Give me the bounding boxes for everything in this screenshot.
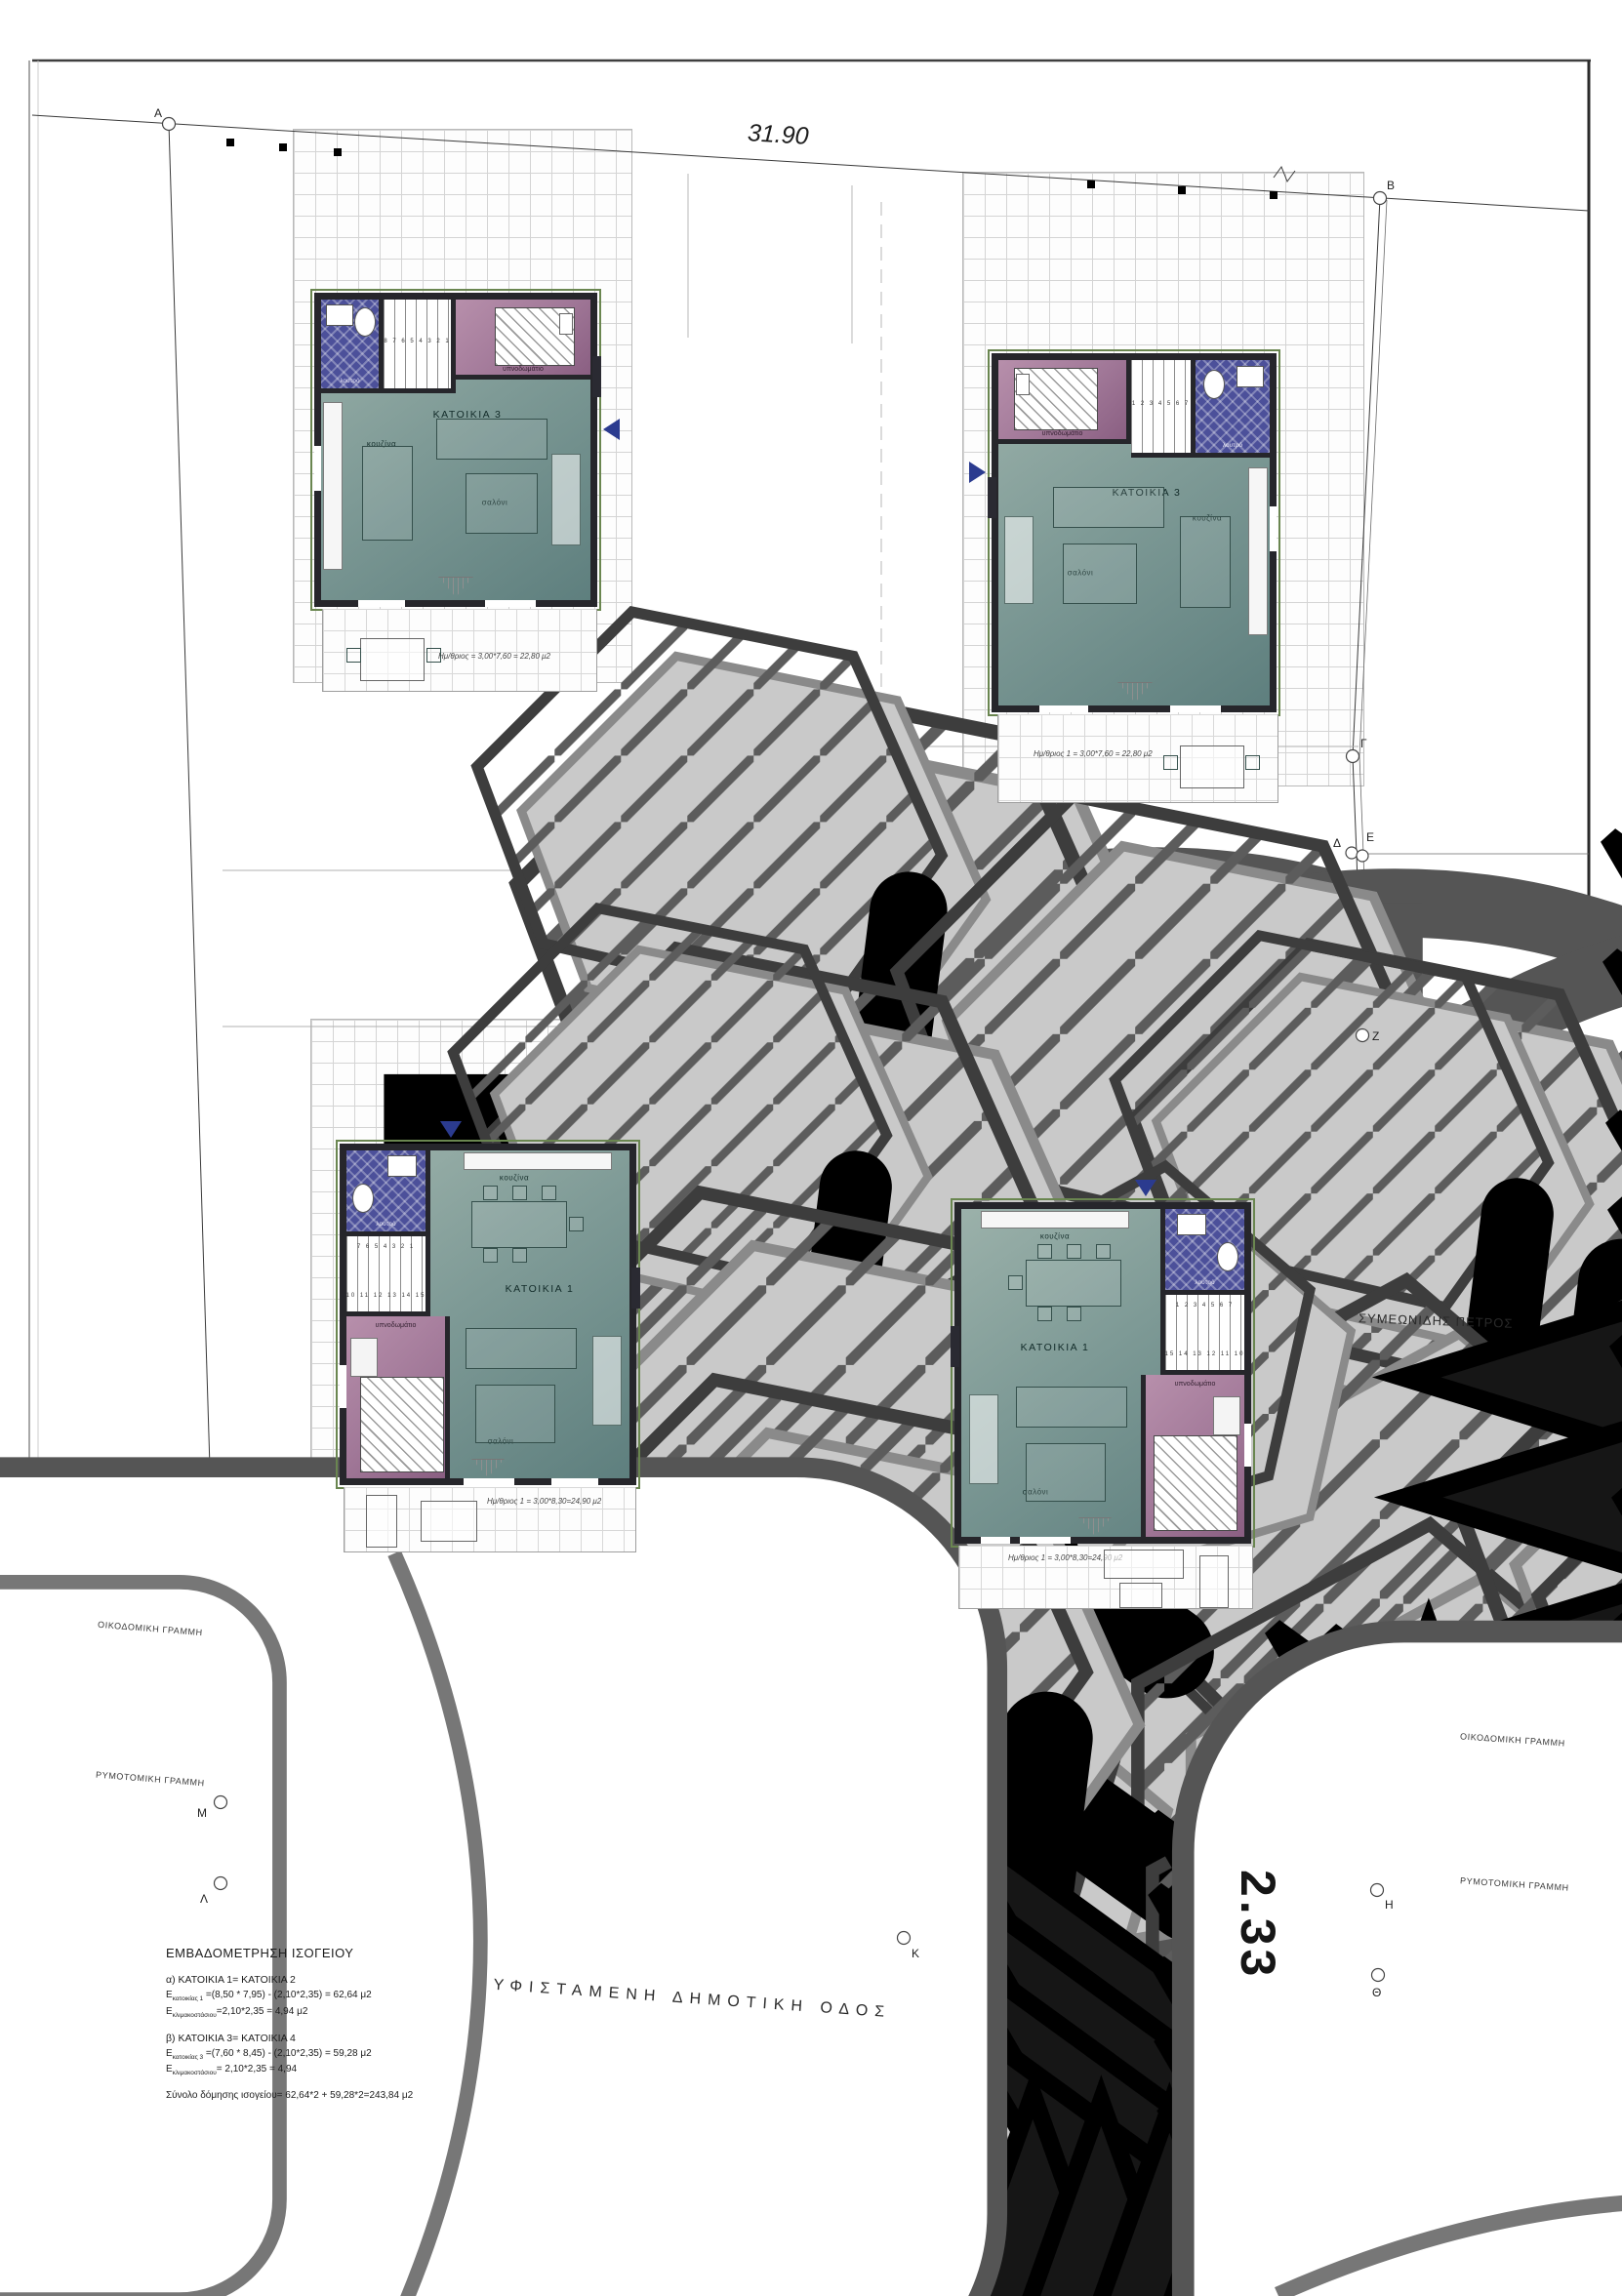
- palm-tree-icon: [1417, 1290, 1622, 2296]
- schedule-line: Eκατοικίας 1 =(8,50 * 7,95) - (2,10*2,35…: [166, 1988, 595, 2004]
- chair: [483, 1186, 498, 1200]
- house-label: ΚΑΤΟΙΚΙΑ 1: [506, 1283, 575, 1295]
- symbol: E: [166, 1990, 173, 2000]
- window-opening: [358, 600, 405, 607]
- palm-tree-icon: [401, 2094, 1622, 2296]
- cabinet: [969, 1394, 998, 1484]
- house-bottom-right: κουζίνα ΚΑΤΟΙΚΙΑ 1 σαλόνι λουτρό 1 2 3 4…: [954, 1202, 1251, 1544]
- chair: [1245, 755, 1260, 770]
- veranda-bottom-left: Ημ/θριος 1 = 3,00*8,30=24,90 μ2: [344, 1487, 636, 1552]
- window-opening: [1244, 1424, 1251, 1467]
- outdoor-table: [360, 638, 425, 681]
- dimension-right: 2.33: [1230, 1870, 1286, 1980]
- bath-label: λουτρό: [1223, 442, 1242, 449]
- chair: [1067, 1307, 1081, 1321]
- building-line-label-left: ΟΙΚΟΔΟΜΙΚΗ ΓΡΑΜΜΗ: [98, 1620, 203, 1637]
- schedule-heading-b: β) ΚΑΤΟΙΚΙΑ 3= ΚΑΤΟΙΚΙΑ 4: [166, 2033, 595, 2044]
- entrance-arrow-icon: [603, 419, 620, 440]
- marker-e: E: [1366, 830, 1374, 844]
- stair-numbers: 15 14 13 12 11 10: [1165, 1351, 1245, 1357]
- marker-a: A: [154, 106, 162, 120]
- bedroom-label: υπνοδωμάτιο: [376, 1322, 417, 1329]
- sink: [326, 304, 353, 326]
- sink: [1177, 1214, 1206, 1235]
- window-opening: [981, 1537, 1010, 1544]
- tree-icon: [498, 1839, 1622, 2296]
- bedroom: υπνοδωμάτιο: [346, 1316, 450, 1478]
- veranda-area-label: Ημ/θριος 1 = 3,00*8,30=24,90 μ2: [487, 1497, 601, 1506]
- stair-numbers: 10 11 12 13 14 15: [346, 1293, 426, 1299]
- branch-trees: [815, 1726, 1622, 2296]
- schedule-title: ΕΜΒΑΔΟΜΕΤΡΗΣΗ ΙΣΟΓΕΙΟΥ: [166, 1946, 595, 1960]
- marker-l: Λ: [200, 1892, 208, 1906]
- palm-tree-icon: [606, 2115, 1622, 2296]
- window-opening: [485, 600, 536, 607]
- palm-tree-icon: [762, 1693, 1622, 2296]
- palm-tree-icon: [538, 2108, 1622, 2296]
- toilet: [354, 307, 376, 337]
- subscript: κλιμακοστάσιου: [173, 2070, 217, 2076]
- outdoor-sofa: [1199, 1555, 1229, 1608]
- sofa: [1063, 544, 1137, 604]
- bedroom: υπνοδωμάτιο: [998, 360, 1131, 444]
- window-opening: [1170, 705, 1221, 712]
- marker-m: M: [197, 1806, 207, 1820]
- subscript: κλιμακοστάσιου: [173, 2012, 217, 2019]
- marker-k: K: [912, 1947, 919, 1960]
- house-label: ΚΑΤΟΙΚΙΑ 1: [1021, 1342, 1090, 1353]
- tree-icon: [487, 2140, 1577, 2296]
- outdoor-sofa: [366, 1495, 397, 1548]
- chair: [569, 1217, 584, 1231]
- veranda-area-label: Ημ/θριος = 3,00*7,60 = 22,80 μ2: [438, 652, 550, 661]
- palm-tree-icon: [1299, 2182, 1622, 2296]
- palm-tree-icon: [1354, 1445, 1622, 2296]
- street-line-label-left: ΡΥΜΟΤΟΜΙΚΗ ΓΡΑΜΜΗ: [96, 1770, 205, 1789]
- dimension-top: 31.90: [747, 119, 809, 151]
- palm-tree-icon: [982, 1923, 1622, 2296]
- bath-label: λουτρό: [376, 1221, 395, 1228]
- window-opening: [1039, 705, 1088, 712]
- house-bottom-left: κουζίνα ΚΑΤΟΙΚΙΑ 1 σαλόνι λουτρό 7 6 5 4…: [340, 1144, 636, 1485]
- deciduous-tree-icon: [1075, 1762, 1622, 2296]
- bed: [1154, 1435, 1237, 1531]
- outdoor-table: [1180, 745, 1244, 788]
- chair: [1037, 1244, 1052, 1259]
- palm-tree-icon: [1415, 1139, 1622, 2296]
- sink: [387, 1155, 417, 1177]
- outdoor-table: [1119, 1583, 1162, 1608]
- veranda-top-left: Ημ/θριος = 3,00*7,60 = 22,80 μ2: [322, 609, 597, 692]
- window-opening: [464, 1478, 514, 1485]
- pillow: [1016, 374, 1030, 395]
- marker-b: B: [1387, 179, 1395, 192]
- window-opening: [340, 1365, 346, 1408]
- bedroom-label: υπνοδωμάτιο: [1175, 1381, 1216, 1388]
- bathroom: λουτρό: [321, 300, 384, 393]
- palm-tree-icon: [674, 2121, 1622, 2296]
- outdoor-sofa: [1104, 1550, 1184, 1579]
- window-bay: [951, 1326, 959, 1367]
- stair-numbers: 7 6 5 4 3 2 1: [357, 1244, 415, 1250]
- entrance-arrow-icon: [969, 462, 986, 483]
- palm-tree-icon: [1413, 1002, 1622, 2296]
- window-opening: [1020, 1537, 1071, 1544]
- subscript: κατοικίας 1: [173, 1995, 203, 2002]
- chair: [346, 648, 361, 663]
- cabinet: [592, 1336, 622, 1426]
- veranda-top-right: Ημ/θριος 1 = 3,00*7,60 = 22,80 μ2: [997, 714, 1278, 803]
- window-opening: [1270, 506, 1277, 551]
- window-bay: [988, 477, 996, 518]
- kitchen-label: κουζίνα: [1040, 1232, 1070, 1241]
- entrance-mat: [1117, 682, 1153, 703]
- palm-tree-icon: [1406, 634, 1622, 2121]
- cabinet: [1004, 516, 1034, 604]
- palm-tree-icon: [1233, 2175, 1622, 2296]
- sofa: [1053, 487, 1164, 528]
- symbol: E: [166, 2064, 173, 2074]
- subscript: κατοικίας 3: [173, 2054, 203, 2061]
- building-line-label-right: ΟΙΚΟΔΟΜΙΚΗ ΓΡΑΜΜΗ: [1460, 1731, 1565, 1748]
- bedroom: υπνοδωμάτιο: [1141, 1375, 1244, 1537]
- entrance-mat: [1078, 1517, 1112, 1536]
- veranda-bottom-right: Ημ/θριος 1 = 3,00*8,30=24,90 μ2: [958, 1546, 1253, 1609]
- kitchen-counter: [323, 402, 343, 570]
- kitchen-counter: [981, 1211, 1129, 1229]
- entrance-arrow-icon: [1135, 1180, 1156, 1196]
- marker-z: Z: [1372, 1029, 1379, 1043]
- neighbor-name-label: ΣΥΜΕΩΝΙΔΗΣ ΠΕΤΡΟΣ: [1358, 1310, 1514, 1331]
- sofa: [466, 473, 538, 534]
- bedroom-label: υπνοδωμάτιο: [503, 366, 544, 373]
- chair: [542, 1186, 556, 1200]
- pillow: [559, 313, 573, 335]
- outdoor-table: [421, 1501, 477, 1542]
- tree-icon: [1459, 1312, 1622, 2296]
- toilet: [352, 1184, 374, 1213]
- palm-tree-icon: [765, 1761, 1622, 2296]
- staircase: 7 6 5 4 3 2 1 10 11 12 13 14 15: [346, 1236, 430, 1316]
- schedule-line: Eκλιμακοστάσιου= 2,10*2,35 = 4,94: [166, 2062, 595, 2078]
- tree-icon: [1532, 1511, 1622, 2296]
- formula: =2,10*2,35 = 4,94 μ2: [217, 2006, 308, 2017]
- staircase: 1 2 3 4 5 6 7 15 14 13 12 11 10: [1160, 1295, 1244, 1375]
- dining-table: [1026, 1260, 1121, 1307]
- entrance-arrow-icon: [440, 1121, 462, 1138]
- toilet: [1203, 370, 1225, 399]
- toilet: [1217, 1242, 1238, 1271]
- chair: [1008, 1275, 1023, 1290]
- schedule-line: Eκατοικίας 3 =(7,60 * 8,45) - (2,10*2,35…: [166, 2046, 595, 2063]
- tree-icon: [1564, 2115, 1622, 2296]
- formula: =(7,60 * 8,45) - (2,10*2,35) = 59,28 μ2: [206, 2048, 372, 2059]
- bathroom: λουτρό: [1160, 1209, 1244, 1295]
- palm-tree-icon: [970, 1634, 1622, 2296]
- chair: [1067, 1244, 1081, 1259]
- bath-label: λουτρό: [340, 378, 359, 384]
- symbol: E: [166, 2006, 173, 2017]
- staircase: 8 7 6 5 4 3 2 1: [384, 300, 456, 393]
- chair: [512, 1186, 527, 1200]
- palm-tree-icon: [979, 1854, 1622, 2296]
- house-top-left: ΚΑΤΟΙΚΙΑ 3 κουζίνα σαλόνι λουτρό 8 7 6 5…: [314, 293, 597, 607]
- house-top-right: ΚΑΤΟΙΚΙΑ 3 κουζίνα σαλόνι υπνοδωμάτιο 1 …: [992, 353, 1277, 712]
- window-opening: [314, 446, 321, 491]
- chair: [1037, 1307, 1052, 1321]
- symbol: E: [166, 2048, 173, 2059]
- palm-tree-icon: [469, 2101, 1622, 2296]
- palm-tree-icon: [1365, 2189, 1622, 2296]
- stair-numbers: 1 2 3 4 5 6 7: [1132, 401, 1190, 407]
- bedroom: υπνοδωμάτιο: [456, 300, 590, 380]
- street-line-label-right: ΡΥΜΟΤΟΜΙΚΗ ΓΡΑΜΜΗ: [1460, 1875, 1569, 1892]
- veranda-area-label: Ημ/θριος 1 = 3,00*7,60 = 22,80 μ2: [1034, 749, 1153, 758]
- deciduous-tree-icon: [1571, 1726, 1622, 2296]
- stair-numbers: 1 2 3 4 5 6 7: [1176, 1303, 1234, 1309]
- chair: [1096, 1244, 1111, 1259]
- palm-tree-icon: [879, 2142, 1622, 2296]
- dining-table: [471, 1201, 567, 1248]
- palm-tree-icon: [973, 1708, 1622, 2296]
- kitchen-island: [362, 446, 413, 541]
- formula: = 2,10*2,35 = 4,94: [217, 2064, 297, 2074]
- entrance-mat: [471, 1459, 505, 1477]
- kitchen-counter: [464, 1152, 612, 1170]
- tree-icon: [1538, 1421, 1622, 2296]
- chair: [483, 1248, 498, 1263]
- palm-tree-icon: [768, 1830, 1622, 2296]
- sofa: [1016, 1387, 1127, 1428]
- marker-h: H: [1385, 1898, 1394, 1912]
- bathroom: λουτρό: [1196, 360, 1270, 458]
- area-schedule: ΕΜΒΑΔΟΜΕΤΡΗΣΗ ΙΣΟΓΕΙΟΥ α) ΚΑΤΟΙΚΙΑ 1= ΚΑ…: [166, 1946, 595, 2101]
- marker-th: Θ: [1372, 1986, 1381, 1999]
- window-bay: [631, 1268, 640, 1309]
- window-bay: [592, 356, 601, 397]
- sofa: [475, 1385, 555, 1443]
- schedule-line: Eκλιμακοστάσιου=2,10*2,35 = 4,94 μ2: [166, 2004, 595, 2021]
- entrance-mat: [438, 577, 473, 597]
- window-opening: [551, 1478, 598, 1485]
- palm-tree-icon: [1100, 2161, 1622, 2296]
- chair: [512, 1248, 527, 1263]
- palm-tree-icon: [976, 1781, 1622, 2296]
- sink: [1237, 366, 1264, 387]
- sofa: [466, 1328, 577, 1369]
- wardrobe: [1213, 1396, 1240, 1435]
- chair: [1163, 755, 1178, 770]
- kitchen-island: [1180, 516, 1231, 608]
- palm-tree-icon: [743, 2128, 1622, 2296]
- marker-d: Δ: [1333, 836, 1341, 850]
- palm-tree-icon: [1408, 754, 1622, 2241]
- bath-label: λουτρό: [1195, 1279, 1214, 1286]
- bathroom: λουτρό: [346, 1150, 430, 1236]
- schedule-total: Σύνολο δόμησης ισογείου= 62,64*2 + 59,28…: [166, 2090, 595, 2101]
- palm-tree-icon: [759, 1625, 1622, 2296]
- formula: =(8,50 * 7,95) - (2,10*2,35) = 62,64 μ2: [206, 1990, 372, 2000]
- tree-icon: [495, 2024, 1622, 2296]
- palm-tree-icon: [1419, 1413, 1622, 2296]
- sofa: [1026, 1443, 1106, 1502]
- cabinet: [551, 454, 581, 545]
- bedroom-label: υπνοδωμάτιο: [1042, 430, 1083, 437]
- palm-tree-icon: [1411, 915, 1622, 2296]
- schedule-heading-a: α) ΚΑΤΟΙΚΙΑ 1= ΚΑΤΟΙΚΙΑ 2: [166, 1974, 595, 1986]
- palm-tree-icon: [1166, 2168, 1622, 2296]
- tree-icon: [1513, 2019, 1622, 2296]
- kitchen-label: κουζίνα: [500, 1174, 529, 1183]
- kitchen-counter: [1248, 467, 1268, 635]
- staircase: 1 2 3 4 5 6 7: [1131, 360, 1196, 458]
- palm-tree-icon: [811, 2135, 1622, 2296]
- bed: [360, 1377, 444, 1472]
- sofa: [436, 419, 547, 460]
- stair-numbers: 8 7 6 5 4 3 2 1: [384, 339, 450, 344]
- wardrobe: [350, 1338, 378, 1377]
- site-plan-sheet: A B Γ Δ E Z H Θ K M Λ ΚΑΤΟΙΚΙΑ 3 κουζί: [0, 0, 1622, 2296]
